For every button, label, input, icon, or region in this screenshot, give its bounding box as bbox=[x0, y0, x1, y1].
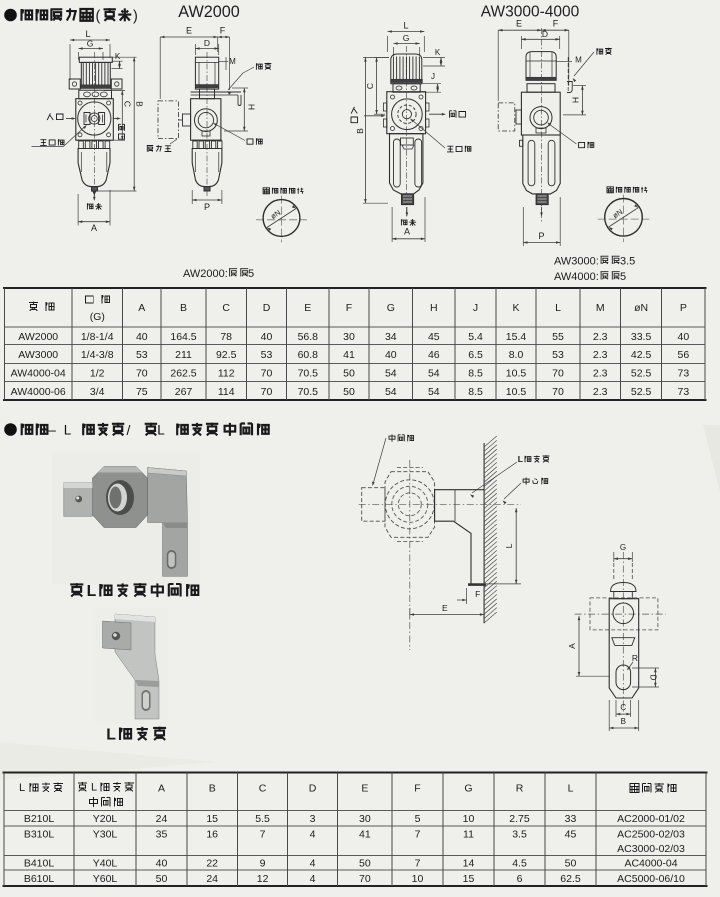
svg-text:10: 10 bbox=[463, 813, 475, 825]
svg-text:10: 10 bbox=[412, 873, 424, 885]
svg-text:H: H bbox=[571, 97, 581, 103]
svg-text:50: 50 bbox=[343, 386, 355, 398]
svg-text:45: 45 bbox=[428, 331, 440, 343]
svg-text:P: P bbox=[204, 202, 210, 212]
svg-text:4: 4 bbox=[310, 873, 316, 885]
svg-text:54: 54 bbox=[428, 368, 440, 380]
svg-text:33: 33 bbox=[565, 813, 577, 825]
svg-text:7: 7 bbox=[415, 858, 421, 870]
svg-text:12: 12 bbox=[257, 873, 269, 885]
svg-text:A: A bbox=[567, 643, 577, 649]
svg-text:30: 30 bbox=[359, 813, 371, 825]
svg-text:E: E bbox=[442, 603, 448, 613]
svg-text:F: F bbox=[414, 783, 420, 795]
svg-text:70: 70 bbox=[136, 368, 148, 380]
svg-text:/: / bbox=[127, 422, 131, 438]
svg-text:A: A bbox=[158, 783, 165, 795]
svg-text:AW4000:: AW4000: bbox=[554, 271, 599, 283]
svg-text:D: D bbox=[204, 38, 210, 48]
svg-text:J: J bbox=[431, 72, 435, 81]
svg-text:8.0: 8.0 bbox=[509, 349, 524, 361]
svg-text:B610L: B610L bbox=[24, 873, 55, 885]
svg-text:F: F bbox=[220, 26, 226, 36]
svg-text:M: M bbox=[575, 56, 582, 65]
svg-text:J: J bbox=[473, 302, 478, 314]
svg-text:Y40L: Y40L bbox=[93, 858, 118, 870]
svg-text:A: A bbox=[91, 223, 97, 233]
svg-text:53: 53 bbox=[136, 349, 148, 361]
svg-text:H: H bbox=[247, 104, 257, 110]
svg-text:M: M bbox=[596, 302, 605, 314]
svg-text:E: E bbox=[304, 302, 311, 314]
svg-text:52.5: 52.5 bbox=[631, 386, 652, 398]
svg-text:AW2000: AW2000 bbox=[178, 3, 240, 21]
svg-text:C: C bbox=[259, 783, 267, 795]
svg-text:L: L bbox=[106, 727, 116, 744]
svg-text:35: 35 bbox=[156, 829, 168, 841]
svg-text:Y60L: Y60L bbox=[93, 873, 118, 885]
svg-text:50: 50 bbox=[156, 873, 168, 885]
svg-text:E: E bbox=[186, 26, 192, 36]
svg-text:30: 30 bbox=[343, 331, 355, 343]
svg-text:70.5: 70.5 bbox=[298, 386, 319, 398]
svg-text:D: D bbox=[649, 675, 658, 681]
svg-text:C: C bbox=[123, 101, 133, 107]
svg-text:3.5: 3.5 bbox=[512, 829, 527, 841]
svg-text:40: 40 bbox=[385, 349, 397, 361]
svg-text:54: 54 bbox=[385, 386, 397, 398]
svg-text:A: A bbox=[404, 227, 410, 237]
svg-text:10.5: 10.5 bbox=[506, 386, 527, 398]
svg-text:1/4-3/8: 1/4-3/8 bbox=[81, 349, 114, 361]
svg-text:54: 54 bbox=[385, 368, 397, 380]
svg-text:112: 112 bbox=[218, 368, 235, 380]
svg-text:5.5: 5.5 bbox=[255, 813, 270, 825]
svg-text:A: A bbox=[138, 302, 145, 314]
svg-text:AW2000:: AW2000: bbox=[183, 268, 228, 280]
svg-text:K: K bbox=[115, 52, 121, 61]
svg-text:53: 53 bbox=[552, 349, 564, 361]
svg-text:B: B bbox=[355, 128, 365, 134]
svg-text:AC4000-04: AC4000-04 bbox=[624, 858, 677, 870]
svg-text:H: H bbox=[430, 302, 438, 314]
svg-text:92.5: 92.5 bbox=[216, 349, 237, 361]
svg-text:24: 24 bbox=[156, 813, 168, 825]
svg-text:70: 70 bbox=[359, 873, 371, 885]
svg-text:B210L: B210L bbox=[24, 813, 55, 825]
svg-text:G: G bbox=[464, 783, 472, 795]
svg-text:E: E bbox=[516, 19, 522, 29]
svg-text:70: 70 bbox=[552, 368, 564, 380]
svg-text:D: D bbox=[263, 302, 271, 314]
svg-text:50: 50 bbox=[565, 858, 577, 870]
svg-text:10.5: 10.5 bbox=[506, 368, 527, 380]
svg-text:56.8: 56.8 bbox=[298, 331, 319, 343]
svg-text:4: 4 bbox=[310, 829, 316, 841]
svg-text:42.5: 42.5 bbox=[631, 349, 652, 361]
svg-text:73: 73 bbox=[678, 386, 690, 398]
svg-text:AW4000-04: AW4000-04 bbox=[11, 368, 66, 380]
svg-text:AW3000: AW3000 bbox=[18, 349, 58, 361]
svg-text:114: 114 bbox=[218, 386, 235, 398]
svg-text:L: L bbox=[91, 782, 97, 794]
svg-text:P: P bbox=[680, 302, 687, 314]
svg-text:53: 53 bbox=[261, 349, 273, 361]
svg-text:C: C bbox=[620, 703, 626, 712]
svg-text:L: L bbox=[568, 783, 574, 795]
svg-text:R: R bbox=[516, 783, 524, 795]
svg-text:164.5: 164.5 bbox=[170, 331, 196, 343]
svg-text:52.5: 52.5 bbox=[631, 368, 652, 380]
svg-text:70: 70 bbox=[261, 368, 273, 380]
svg-text:R: R bbox=[632, 653, 638, 663]
svg-text:15.4: 15.4 bbox=[506, 331, 527, 343]
svg-text:AW2000: AW2000 bbox=[18, 331, 58, 343]
svg-text:2.3: 2.3 bbox=[593, 368, 608, 380]
svg-text:G: G bbox=[387, 302, 395, 314]
svg-text:40: 40 bbox=[156, 858, 168, 870]
svg-text:P: P bbox=[538, 231, 544, 241]
svg-text:D: D bbox=[309, 783, 317, 795]
svg-text:46: 46 bbox=[428, 349, 440, 361]
svg-text:73: 73 bbox=[678, 368, 690, 380]
svg-text:211: 211 bbox=[175, 349, 192, 361]
svg-text:G: G bbox=[403, 33, 410, 43]
svg-text:K: K bbox=[435, 48, 441, 57]
svg-text:L: L bbox=[403, 21, 408, 31]
svg-text:33.5: 33.5 bbox=[631, 331, 652, 343]
svg-text:E: E bbox=[361, 783, 368, 795]
svg-text:5: 5 bbox=[248, 268, 254, 280]
svg-text:2.3: 2.3 bbox=[593, 349, 608, 361]
svg-text:41: 41 bbox=[359, 829, 371, 841]
svg-text:3/4: 3/4 bbox=[90, 386, 105, 398]
svg-text:8.5: 8.5 bbox=[468, 386, 483, 398]
svg-text:54: 54 bbox=[428, 386, 440, 398]
svg-text:1/2: 1/2 bbox=[90, 368, 105, 380]
svg-text:AC2500-02/03: AC2500-02/03 bbox=[617, 829, 685, 841]
svg-text:C: C bbox=[365, 83, 375, 89]
svg-text:22: 22 bbox=[206, 858, 218, 870]
svg-text:70: 70 bbox=[552, 386, 564, 398]
svg-text:L: L bbox=[87, 583, 97, 600]
svg-text:4.5: 4.5 bbox=[512, 858, 527, 870]
svg-text:75: 75 bbox=[136, 386, 148, 398]
svg-text:AW3000-4000: AW3000-4000 bbox=[481, 4, 580, 21]
svg-text:F: F bbox=[346, 302, 352, 314]
svg-text:L: L bbox=[85, 29, 90, 39]
svg-text:L: L bbox=[518, 454, 523, 464]
svg-text:40: 40 bbox=[136, 331, 148, 343]
svg-text:3: 3 bbox=[310, 813, 316, 825]
svg-text:6: 6 bbox=[517, 873, 523, 885]
svg-text:267: 267 bbox=[175, 386, 193, 398]
svg-text:C: C bbox=[222, 302, 230, 314]
svg-text:14: 14 bbox=[463, 858, 475, 870]
svg-text:M: M bbox=[229, 57, 236, 66]
svg-text:41: 41 bbox=[343, 349, 355, 361]
svg-text:2.3: 2.3 bbox=[593, 386, 608, 398]
svg-text:11: 11 bbox=[463, 829, 474, 841]
svg-text:AC5000-06/10: AC5000-06/10 bbox=[617, 873, 685, 885]
svg-text:B: B bbox=[209, 783, 216, 795]
svg-text:L: L bbox=[504, 543, 514, 548]
svg-text:4: 4 bbox=[310, 858, 316, 870]
svg-text:2.3: 2.3 bbox=[593, 331, 608, 343]
svg-text:15: 15 bbox=[206, 813, 218, 825]
svg-text:AC3000-02/03: AC3000-02/03 bbox=[617, 843, 685, 855]
svg-text:): ) bbox=[133, 9, 138, 25]
svg-text:B: B bbox=[180, 302, 187, 314]
svg-text:78: 78 bbox=[220, 331, 232, 343]
svg-text:D: D bbox=[542, 29, 548, 39]
svg-text:AW4000-06: AW4000-06 bbox=[11, 386, 66, 398]
svg-text:F: F bbox=[475, 589, 480, 599]
svg-text:(: ( bbox=[96, 9, 101, 25]
svg-text:(G): (G) bbox=[90, 311, 105, 323]
svg-text:6.5: 6.5 bbox=[468, 349, 483, 361]
svg-text:B410L: B410L bbox=[24, 858, 55, 870]
svg-text:7: 7 bbox=[260, 829, 266, 841]
svg-text:50: 50 bbox=[359, 858, 371, 870]
svg-text:70.5: 70.5 bbox=[298, 368, 319, 380]
svg-text:L: L bbox=[555, 302, 561, 314]
svg-text:70: 70 bbox=[261, 386, 273, 398]
svg-text:B: B bbox=[135, 101, 145, 107]
svg-text:16: 16 bbox=[206, 829, 218, 841]
svg-text:Y30L: Y30L bbox=[93, 829, 118, 841]
svg-text:50: 50 bbox=[343, 368, 355, 380]
svg-text:45: 45 bbox=[565, 829, 577, 841]
svg-text:262.5: 262.5 bbox=[170, 368, 196, 380]
svg-text:24: 24 bbox=[206, 873, 218, 885]
svg-text:AC2000-01/02: AC2000-01/02 bbox=[617, 813, 685, 825]
svg-text:5.4: 5.4 bbox=[468, 331, 483, 343]
svg-text:40: 40 bbox=[261, 331, 273, 343]
svg-text:9: 9 bbox=[260, 858, 266, 870]
svg-text:5: 5 bbox=[415, 813, 421, 825]
svg-text:øN: øN bbox=[634, 302, 648, 314]
svg-text:L: L bbox=[64, 423, 72, 438]
svg-text:5: 5 bbox=[620, 271, 626, 283]
svg-text:55: 55 bbox=[552, 331, 564, 343]
svg-text:2.75: 2.75 bbox=[509, 813, 530, 825]
svg-text:G: G bbox=[620, 543, 626, 552]
svg-text:L: L bbox=[157, 423, 165, 438]
svg-text:1/8-1/4: 1/8-1/4 bbox=[81, 331, 114, 343]
svg-text:Y20L: Y20L bbox=[93, 813, 118, 825]
svg-text:B310L: B310L bbox=[24, 829, 55, 841]
svg-text:3.5: 3.5 bbox=[620, 256, 635, 268]
svg-text:G: G bbox=[87, 39, 94, 49]
svg-text:34: 34 bbox=[385, 331, 397, 343]
svg-text:62.5: 62.5 bbox=[560, 873, 581, 885]
svg-text:15: 15 bbox=[463, 873, 475, 885]
svg-text:AW3000:: AW3000: bbox=[554, 256, 599, 268]
svg-text:40: 40 bbox=[678, 331, 690, 343]
svg-text:K: K bbox=[512, 302, 519, 314]
svg-text:F: F bbox=[553, 19, 559, 29]
svg-text:L: L bbox=[19, 782, 25, 794]
svg-text:60.8: 60.8 bbox=[298, 349, 319, 361]
svg-text:B: B bbox=[621, 717, 626, 726]
svg-text:–: – bbox=[48, 422, 56, 438]
svg-text:56: 56 bbox=[678, 349, 690, 361]
svg-text:8.5: 8.5 bbox=[468, 368, 483, 380]
svg-text:7: 7 bbox=[415, 829, 421, 841]
